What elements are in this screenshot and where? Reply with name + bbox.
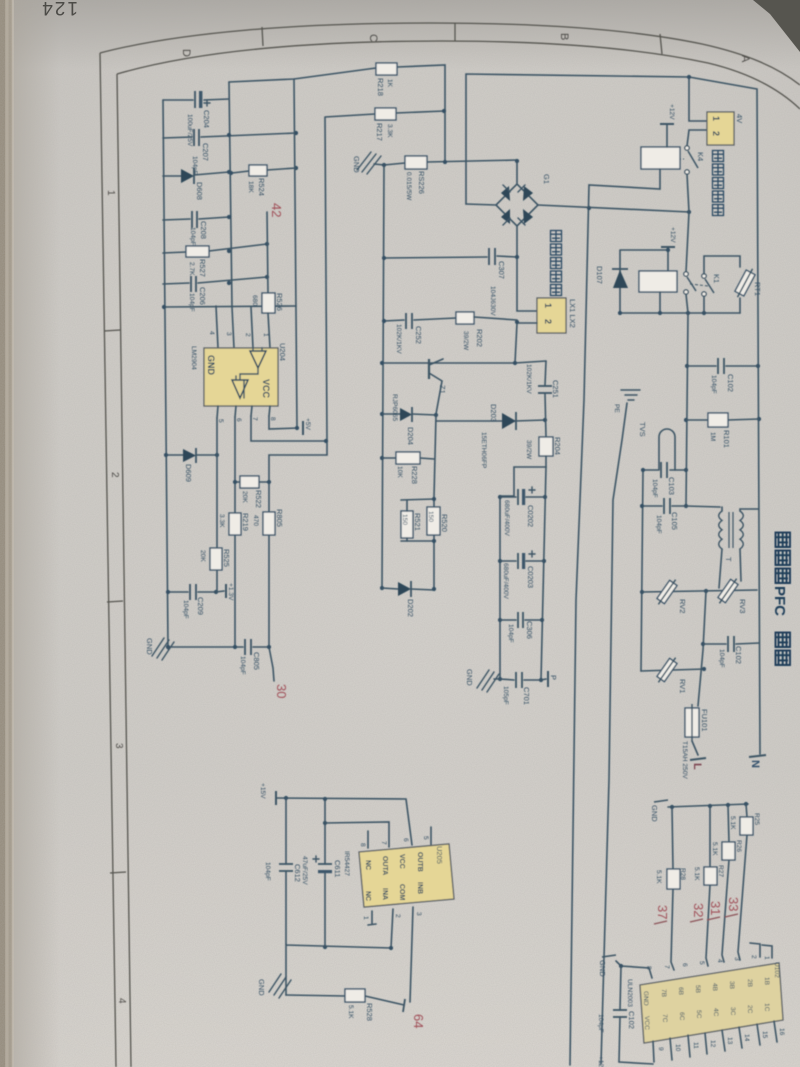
svg-text:10K: 10K	[396, 466, 403, 478]
svg-text:2: 2	[543, 319, 553, 324]
svg-text:C611: C611	[333, 860, 342, 877]
svg-text:6B: 6B	[677, 987, 684, 996]
svg-text:RV2: RV2	[678, 599, 687, 613]
svg-text:5.1K: 5.1K	[693, 867, 700, 881]
svg-text:1K: 1K	[386, 79, 393, 88]
svg-text:NC: NC	[364, 891, 371, 901]
svg-text:3: 3	[733, 957, 740, 961]
svg-text:6: 6	[402, 838, 409, 842]
svg-text:R204: R204	[553, 437, 562, 455]
svg-text:R528: R528	[365, 1003, 374, 1021]
svg-text:6: 6	[235, 418, 242, 422]
svg-text:2: 2	[244, 333, 251, 337]
svg-text:R217: R217	[375, 123, 384, 141]
svg-text:42: 42	[269, 203, 284, 217]
svg-text:104pF: 104pF	[597, 1014, 604, 1033]
svg-text:64: 64	[411, 1014, 426, 1028]
svg-text:ULN2003: ULN2003	[626, 979, 633, 1007]
svg-text:5: 5	[217, 419, 224, 423]
svg-text:RT1: RT1	[753, 282, 762, 296]
svg-text:TVS: TVS	[638, 422, 647, 437]
svg-text:5.1K: 5.1K	[347, 1005, 354, 1019]
svg-text:3: 3	[225, 332, 232, 336]
svg-text:R527: R527	[198, 259, 207, 277]
svg-text:1: 1	[362, 916, 369, 920]
svg-text:PFC: PFC	[771, 586, 788, 616]
svg-text:1C: 1C	[763, 1003, 770, 1012]
svg-text:PE: PE	[613, 404, 620, 413]
svg-text:C207: C207	[201, 143, 210, 161]
svg-text:D609: D609	[184, 464, 193, 482]
svg-text:C209: C209	[196, 597, 205, 615]
svg-text:C252: C252	[414, 326, 423, 344]
svg-text:680uF/400V: 680uF/400V	[502, 563, 509, 600]
svg-text:20K: 20K	[199, 550, 206, 562]
svg-text:470: 470	[252, 515, 259, 526]
svg-text:100uF/25V: 100uF/25V	[186, 114, 193, 147]
svg-text:2C: 2C	[746, 1005, 753, 1014]
svg-text:GND: GND	[206, 355, 216, 376]
svg-text:RV1: RV1	[678, 679, 687, 693]
svg-text:D: D	[180, 49, 192, 57]
svg-text:104pF: 104pF	[718, 649, 725, 668]
svg-text:C: C	[367, 34, 379, 42]
svg-text:102K/1KV: 102K/1KV	[525, 364, 532, 394]
svg-text:G1: G1	[542, 174, 551, 184]
svg-text:GND: GND	[145, 638, 154, 655]
svg-text:2B: 2B	[746, 979, 753, 988]
svg-text:104pF: 104pF	[264, 862, 271, 881]
svg-text:5B: 5B	[694, 985, 701, 994]
svg-text:R521: R521	[413, 513, 422, 531]
svg-text:20K: 20K	[241, 491, 248, 503]
svg-text:102K/1KV: 102K/1KV	[395, 324, 402, 354]
svg-text:R524: R524	[257, 178, 266, 196]
svg-text:3B: 3B	[728, 981, 735, 990]
svg-text:2: 2	[394, 914, 401, 918]
svg-text:C102: C102	[627, 1011, 636, 1029]
svg-text:R28: R28	[679, 868, 686, 880]
svg-text:LM2904: LM2904	[190, 346, 197, 370]
svg-text:IR54427: IR54427	[343, 851, 350, 876]
svg-text:2: 2	[750, 955, 757, 959]
svg-text:5.1K: 5.1K	[729, 816, 736, 830]
svg-text:7C: 7C	[661, 1014, 668, 1023]
svg-text:D202: D202	[406, 599, 415, 617]
svg-text:6: 6	[681, 963, 688, 967]
svg-text:8: 8	[359, 843, 366, 847]
svg-text:D204: D204	[406, 427, 415, 445]
svg-text:U205: U205	[435, 846, 444, 864]
svg-text:104pF: 104pF	[651, 479, 658, 498]
svg-text:LX1 LX2: LX1 LX2	[568, 299, 577, 328]
svg-text:C0202: C0202	[526, 505, 535, 527]
svg-text:B: B	[558, 33, 570, 40]
svg-text:104pF: 104pF	[507, 624, 514, 643]
svg-text:39/2W: 39/2W	[462, 331, 469, 351]
svg-text:4: 4	[116, 998, 127, 1004]
svg-text:104pF: 104pF	[188, 293, 195, 312]
svg-text:FU101: FU101	[700, 709, 709, 732]
svg-text:R525: R525	[222, 549, 231, 567]
svg-text:5C: 5C	[695, 1010, 702, 1019]
svg-text:K1: K1	[712, 274, 721, 283]
svg-text:1: 1	[763, 956, 770, 960]
svg-text:13: 13	[726, 1037, 733, 1045]
svg-text:R25: R25	[753, 813, 760, 825]
svg-text:6C: 6C	[678, 1012, 685, 1021]
svg-text:14: 14	[743, 1034, 750, 1042]
svg-text:C103: C103	[667, 477, 676, 495]
svg-text:INB: INB	[416, 882, 423, 894]
svg-text:C105: C105	[670, 512, 679, 530]
svg-text:104pF: 104pF	[189, 227, 196, 246]
svg-text:2: 2	[711, 131, 721, 136]
svg-text:VCC: VCC	[398, 854, 405, 869]
svg-text:COM: COM	[398, 884, 405, 901]
svg-text:11: 11	[692, 1042, 699, 1049]
svg-text:3: 3	[415, 912, 422, 916]
svg-text:15: 15	[761, 1031, 768, 1039]
svg-text:R219: R219	[241, 513, 250, 531]
svg-text:7B: 7B	[660, 989, 667, 998]
svg-text:U204: U204	[278, 343, 287, 361]
svg-text:9: 9	[657, 1047, 664, 1051]
svg-text:4V: 4V	[735, 114, 744, 123]
svg-text:32: 32	[691, 903, 706, 917]
svg-text:4: 4	[716, 959, 723, 963]
svg-text:GND: GND	[598, 960, 607, 977]
svg-text:104pF: 104pF	[710, 375, 717, 394]
svg-text:4C: 4C	[712, 1008, 719, 1017]
svg-text:+15V: +15V	[259, 783, 266, 799]
svg-text:RS226: RS226	[417, 171, 426, 194]
svg-text:1: 1	[543, 303, 553, 308]
svg-text:12: 12	[709, 1040, 716, 1048]
svg-text:VCC: VCC	[643, 1016, 650, 1030]
svg-text:1: 1	[262, 333, 269, 337]
svg-text:C307: C307	[497, 261, 506, 279]
svg-text:3: 3	[113, 743, 124, 749]
svg-text:2: 2	[109, 472, 120, 478]
svg-text:R526: R526	[275, 293, 284, 311]
svg-text:18K: 18K	[247, 181, 254, 193]
svg-text:+12V: +12V	[668, 104, 675, 120]
svg-text:D107: D107	[595, 266, 604, 284]
svg-text:5.1K: 5.1K	[655, 870, 662, 884]
svg-text:RJP6065: RJP6065	[391, 394, 398, 421]
svg-text:4B: 4B	[711, 983, 718, 992]
svg-text:104pF: 104pF	[239, 656, 246, 675]
svg-text:33: 33	[726, 897, 741, 911]
svg-text:GND: GND	[650, 805, 659, 822]
svg-text:10: 10	[674, 1044, 681, 1052]
svg-text:4: 4	[208, 331, 215, 335]
svg-text:C208: C208	[199, 221, 208, 239]
svg-text:+1.3V: +1.3V	[227, 583, 234, 601]
svg-text:+5V: +5V	[304, 418, 311, 431]
svg-text:L: L	[691, 763, 703, 770]
svg-text:47uF/25V: 47uF/25V	[301, 856, 308, 885]
svg-text:C0203: C0203	[526, 566, 535, 588]
svg-text:INA: INA	[381, 888, 388, 900]
svg-text:T: T	[724, 557, 733, 562]
svg-text:150: 150	[427, 511, 434, 522]
svg-text:C805: C805	[252, 652, 261, 670]
svg-text:37: 37	[655, 905, 670, 919]
svg-text:R101: R101	[722, 430, 731, 448]
svg-text:GND: GND	[465, 669, 474, 686]
svg-text:P: P	[549, 675, 558, 680]
svg-text:C102: C102	[726, 374, 735, 392]
svg-text:R522: R522	[254, 490, 263, 508]
svg-text:R202: R202	[475, 329, 484, 347]
svg-text:3.3K: 3.3K	[386, 124, 393, 138]
svg-text:N: N	[749, 760, 761, 768]
svg-text:3.3K: 3.3K	[218, 514, 225, 528]
svg-text:39/2W: 39/2W	[525, 440, 532, 460]
svg-text:1: 1	[105, 190, 116, 196]
svg-text:+12V: +12V	[669, 227, 676, 243]
svg-text:104pF: 104pF	[182, 600, 189, 619]
svg-text:C206: C206	[198, 287, 207, 305]
svg-text:Z1: Z1	[438, 385, 447, 394]
svg-text:R228: R228	[410, 466, 419, 484]
svg-text:VCC: VCC	[261, 379, 271, 399]
svg-text:C306: C306	[525, 621, 534, 639]
svg-text:5: 5	[422, 836, 429, 840]
svg-text:150: 150	[401, 514, 408, 525]
svg-text:0.015/5W: 0.015/5W	[405, 172, 412, 201]
svg-text:31: 31	[708, 901, 723, 915]
svg-text:C102: C102	[734, 646, 743, 664]
svg-text:GND: GND	[257, 979, 266, 996]
svg-text:16: 16	[778, 1028, 785, 1036]
svg-text:GND: GND	[642, 991, 649, 1006]
svg-text:OUTB: OUTB	[416, 852, 423, 872]
svg-text:RV3: RV3	[738, 599, 747, 613]
svg-text:C251: C251	[551, 380, 560, 398]
svg-text:1M: 1M	[709, 432, 716, 441]
svg-text:3C: 3C	[729, 1007, 736, 1016]
svg-text:30: 30	[274, 684, 289, 698]
svg-text:2.7K: 2.7K	[188, 262, 195, 276]
svg-text:C612: C612	[293, 864, 302, 882]
svg-text:R805: R805	[275, 509, 284, 527]
svg-text:GND: GND	[352, 156, 361, 173]
svg-text:15ETH06FP: 15ETH06FP	[480, 432, 487, 469]
svg-text:104pF: 104pF	[655, 515, 662, 534]
svg-text:5: 5	[698, 961, 705, 965]
svg-text:124: 124	[40, 0, 78, 18]
svg-text:C204: C204	[202, 110, 211, 128]
svg-text:680: 680	[251, 295, 258, 306]
svg-text:U102: U102	[773, 962, 780, 978]
svg-text:R520: R520	[440, 514, 449, 532]
svg-text:7: 7	[380, 841, 387, 845]
svg-text:R218: R218	[376, 78, 385, 96]
svg-text:1B: 1B	[763, 977, 770, 986]
svg-text:C701: C701	[522, 687, 531, 705]
svg-text:NC: NC	[364, 860, 371, 870]
svg-text:680uF/400V: 680uF/400V	[503, 500, 510, 537]
svg-text:7: 7	[251, 417, 258, 421]
svg-text:A: A	[739, 55, 751, 63]
svg-text:OUTA: OUTA	[381, 856, 388, 875]
svg-text:D608: D608	[195, 182, 204, 200]
svg-text:7: 7	[663, 965, 670, 969]
svg-text:D203: D203	[489, 404, 498, 422]
svg-text:T15AH 250V: T15AH 250V	[681, 741, 688, 779]
svg-text:104J630V: 104J630V	[489, 286, 496, 316]
svg-text:K4: K4	[696, 152, 705, 161]
svg-text:R27: R27	[717, 865, 724, 877]
svg-text:R26: R26	[735, 840, 742, 852]
svg-text:8: 8	[269, 417, 276, 421]
svg-text:+12V: +12V	[597, 1056, 604, 1067]
svg-text:5.1K: 5.1K	[711, 842, 718, 856]
svg-text:1: 1	[711, 116, 721, 121]
svg-text:105pF: 105pF	[502, 686, 509, 705]
